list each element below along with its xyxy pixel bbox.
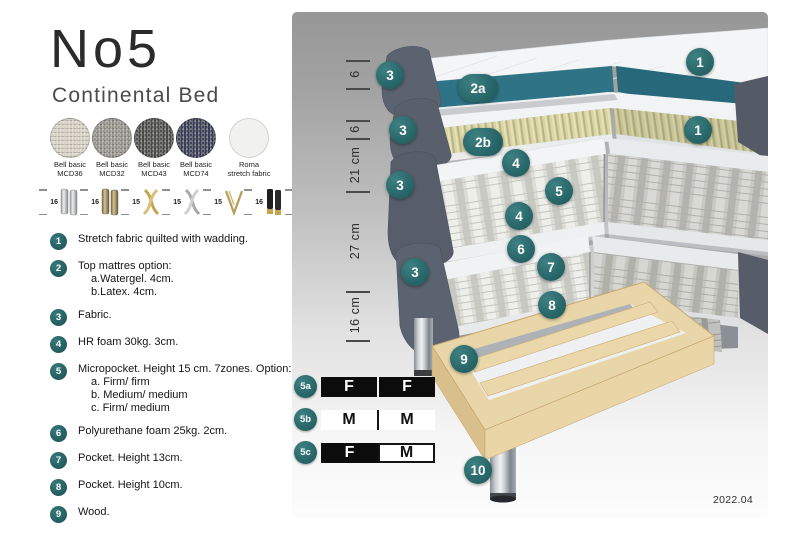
callout-badge: 4 bbox=[505, 202, 533, 230]
leg-icon-cross-silver bbox=[182, 188, 202, 216]
feature-subtext: a.Watergel. 4cm. bbox=[91, 273, 174, 286]
ruler-label: 16 cm bbox=[348, 297, 362, 334]
leg-height: 16 bbox=[49, 199, 58, 206]
ruler-label: 6 bbox=[348, 125, 362, 132]
feature-item: 7 Pocket. Height 13cm. bbox=[50, 452, 300, 469]
fabric-swatches: Bell basicMCD36 Bell basicMCD32 Bell bas… bbox=[50, 118, 274, 178]
feature-item: 5 Micropocket. Height 15 cm. 7zones. Opt… bbox=[50, 363, 300, 415]
firmness-cell: F bbox=[321, 443, 378, 463]
feature-number-badge: 1 bbox=[50, 233, 67, 250]
fabric-swatch-circle bbox=[134, 118, 174, 158]
ruler-tick bbox=[346, 60, 370, 62]
firmness-bar: F F bbox=[321, 377, 435, 397]
leg-height: 15 bbox=[131, 199, 140, 206]
leg-height: 16 bbox=[90, 199, 99, 206]
feature-text: Micropocket. Height 15 cm. 7zones. Optio… bbox=[78, 363, 291, 376]
leg-icon-cylinder-silver bbox=[59, 188, 79, 216]
ruler-tick bbox=[346, 340, 370, 342]
diagram-panel: 6 6 21 cm 27 cm 16 cm 1 3 2a 3 2b 1 4 3 … bbox=[292, 12, 768, 518]
leg-option: 15 bbox=[172, 188, 202, 216]
feature-text: Pocket. Height 13cm. bbox=[78, 452, 183, 465]
ruler-tick bbox=[346, 138, 370, 140]
feature-subtext: b.Latex. 4cm. bbox=[91, 286, 174, 299]
feature-item: 3 Fabric. bbox=[50, 309, 300, 326]
leg-option: 16 bbox=[254, 188, 284, 216]
firmness-bar: M M bbox=[321, 410, 435, 430]
feature-text: Wood. bbox=[78, 506, 110, 519]
fabric-swatch: Bell basicMCD43 bbox=[134, 118, 174, 178]
divider bbox=[38, 187, 49, 217]
leg-icon-cross-gold bbox=[141, 188, 161, 216]
ruler-tick bbox=[346, 120, 370, 122]
feature-number-badge: 5 bbox=[50, 363, 67, 380]
firmness-bar: F M bbox=[321, 443, 435, 463]
version-label: 2022.04 bbox=[713, 494, 753, 506]
feature-item: 1 Stretch fabric quilted with wadding. bbox=[50, 233, 300, 250]
leg-height: 15 bbox=[172, 199, 181, 206]
fabric-code: MCD36 bbox=[57, 169, 82, 178]
leg-option: 16 bbox=[49, 188, 79, 216]
feature-number-badge: 3 bbox=[50, 309, 67, 326]
firmness-row-5b: 5b M M bbox=[294, 408, 435, 431]
callout-badge: 3 bbox=[389, 116, 417, 144]
feature-text: Stretch fabric quilted with wadding. bbox=[78, 233, 248, 246]
divider bbox=[120, 187, 131, 217]
firmness-badge: 5a bbox=[294, 375, 317, 398]
leg-option: 16 bbox=[90, 188, 120, 216]
firmness-cell: F bbox=[379, 377, 435, 397]
callout-badge: 1 bbox=[684, 116, 712, 144]
fabric-code: MCD43 bbox=[141, 169, 166, 178]
feature-item: 2 Top mattres option: a.Watergel. 4cm. b… bbox=[50, 260, 300, 299]
fabric-swatch-circle bbox=[92, 118, 132, 158]
callout-badge: 9 bbox=[450, 345, 478, 373]
leg-icon-cylinder-bronze bbox=[100, 188, 120, 216]
feature-text: Top mattres option: bbox=[78, 260, 174, 273]
rear-metal-leg bbox=[414, 318, 433, 376]
product-title: No5 bbox=[50, 18, 161, 80]
callout-badge: 2b bbox=[463, 128, 503, 156]
divider bbox=[202, 187, 213, 217]
callout-badge: 8 bbox=[538, 291, 566, 319]
fabric-code: stretch fabric bbox=[228, 169, 271, 178]
feature-list: 1 Stretch fabric quilted with wadding. 2… bbox=[50, 233, 300, 533]
leg-option: 15 bbox=[131, 188, 161, 216]
fabric-swatch: Bell basicMCD32 bbox=[92, 118, 132, 178]
firmness-cell: M bbox=[378, 443, 435, 463]
feature-number-badge: 7 bbox=[50, 452, 67, 469]
ruler-tick bbox=[346, 88, 370, 90]
firmness-cell: M bbox=[379, 410, 435, 430]
fabric-swatch: Bell basicMCD74 bbox=[176, 118, 216, 178]
ruler-tick bbox=[346, 291, 370, 293]
feature-subtext: c. Firm/ medium bbox=[91, 402, 291, 415]
feature-subtext: b. Medium/ medium bbox=[91, 389, 291, 402]
firmness-row-5c: 5c F M bbox=[294, 441, 435, 464]
callout-badge: 1 bbox=[686, 48, 714, 76]
divider bbox=[161, 187, 172, 217]
callout-badge: 3 bbox=[401, 258, 429, 286]
leg-height: 15 bbox=[213, 199, 222, 206]
feature-number-badge: 4 bbox=[50, 336, 67, 353]
ruler-label: 27 cm bbox=[348, 223, 362, 260]
callout-badge: 6 bbox=[507, 235, 535, 263]
feature-text: Polyurethane foam 25kg. 2cm. bbox=[78, 425, 227, 438]
callout-badge: 3 bbox=[376, 61, 404, 89]
feature-text: Fabric. bbox=[78, 309, 112, 322]
leg-icon-hairpin bbox=[223, 188, 243, 216]
callout-badge: 3 bbox=[386, 171, 414, 199]
callout-badge: 4 bbox=[502, 149, 530, 177]
feature-text: Pocket. Height 10cm. bbox=[78, 479, 183, 492]
feature-number-badge: 9 bbox=[50, 506, 67, 523]
feature-subtext: a. Firm/ firm bbox=[91, 376, 291, 389]
fabric-swatch-circle bbox=[229, 118, 269, 158]
product-subtitle: Continental Bed bbox=[52, 84, 219, 108]
ruler-tick bbox=[346, 191, 370, 193]
fabric-code: MCD74 bbox=[183, 169, 208, 178]
ruler-label: 6 bbox=[348, 70, 362, 77]
divider bbox=[79, 187, 90, 217]
leg-height: 16 bbox=[254, 199, 263, 206]
firmness-cell: M bbox=[321, 410, 377, 430]
callout-badge: 5 bbox=[545, 177, 573, 205]
feature-item: 4 HR foam 30kg. 3cm. bbox=[50, 336, 300, 353]
leg-option: 15 bbox=[213, 188, 243, 216]
info-column: No5 Continental Bed Bell basicMCD36 Bell… bbox=[0, 0, 292, 533]
callout-badge: 7 bbox=[537, 253, 565, 281]
firmness-badge: 5c bbox=[294, 441, 317, 464]
feature-number-badge: 2 bbox=[50, 260, 67, 277]
divider bbox=[243, 187, 254, 217]
fabric-code: MCD32 bbox=[99, 169, 124, 178]
firmness-row-5a: 5a F F bbox=[294, 375, 435, 398]
infographic: No5 Continental Bed Bell basicMCD36 Bell… bbox=[0, 0, 800, 533]
leg-icon-cylinder-black-gold bbox=[264, 188, 284, 216]
leg-options: 16 16 15 bbox=[38, 186, 295, 218]
callout-badge: 10 bbox=[464, 456, 492, 484]
feature-item: 9 Wood. bbox=[50, 506, 300, 523]
callout-badge: 2a bbox=[458, 74, 498, 102]
feature-number-badge: 6 bbox=[50, 425, 67, 442]
fabric-swatch-circle bbox=[50, 118, 90, 158]
firmness-badge: 5b bbox=[294, 408, 317, 431]
feature-item: 6 Polyurethane foam 25kg. 2cm. bbox=[50, 425, 300, 442]
firmness-cell: F bbox=[321, 377, 377, 397]
feature-number-badge: 8 bbox=[50, 479, 67, 496]
fabric-swatch-circle bbox=[176, 118, 216, 158]
fabric-swatch: Bell basicMCD36 bbox=[50, 118, 90, 178]
feature-text: HR foam 30kg. 3cm. bbox=[78, 336, 178, 349]
feature-item: 8 Pocket. Height 10cm. bbox=[50, 479, 300, 496]
fabric-swatch: Romastretch fabric bbox=[224, 118, 274, 178]
ruler-label: 21 cm bbox=[348, 147, 362, 184]
